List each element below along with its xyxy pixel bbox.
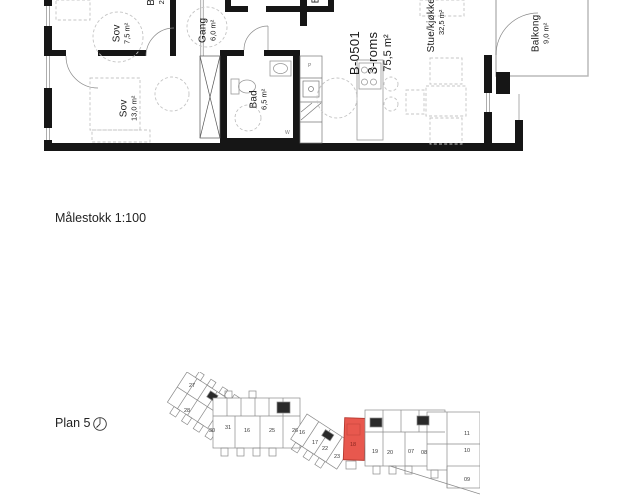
svg-text:07: 07 bbox=[408, 449, 414, 455]
svg-text:16: 16 bbox=[244, 428, 250, 434]
furniture bbox=[56, 0, 466, 144]
svg-text:16: 16 bbox=[299, 430, 305, 436]
svg-text:18: 18 bbox=[350, 442, 356, 448]
svg-text:22: 22 bbox=[322, 446, 328, 452]
svg-text:08: 08 bbox=[421, 450, 427, 456]
pantry-mark: P bbox=[308, 63, 312, 69]
svg-text:28: 28 bbox=[184, 408, 190, 414]
svg-text:09: 09 bbox=[464, 477, 470, 483]
svg-text:25: 25 bbox=[269, 428, 275, 434]
shaft bbox=[200, 56, 220, 138]
svg-text:19: 19 bbox=[372, 449, 378, 455]
walls bbox=[44, 0, 523, 151]
svg-text:20: 20 bbox=[387, 450, 393, 456]
bath-fixtures bbox=[231, 61, 291, 131]
kitchen-island bbox=[357, 60, 383, 140]
balcony-outline bbox=[496, 0, 588, 76]
svg-text:26: 26 bbox=[292, 428, 298, 434]
kitchen-cabinets bbox=[300, 56, 322, 143]
svg-text:10: 10 bbox=[464, 448, 470, 454]
svg-text:23: 23 bbox=[334, 454, 340, 460]
scale-label: Målestokk 1:100 bbox=[55, 211, 146, 225]
plan-level-label: Plan 5 bbox=[55, 416, 90, 430]
floorplan-page: P W bbox=[0, 0, 636, 500]
svg-text:27: 27 bbox=[189, 383, 195, 389]
svg-text:30: 30 bbox=[209, 428, 215, 434]
svg-text:11: 11 bbox=[464, 431, 470, 437]
keyplan-block-middle bbox=[213, 391, 300, 456]
svg-text:31: 31 bbox=[225, 425, 231, 431]
window-lines bbox=[47, 0, 520, 143]
key-plan: 27 28 30 31 16 25 26 16 17 22 23 18 19 2… bbox=[165, 372, 480, 496]
washer-mark: W bbox=[285, 130, 290, 136]
floor-plan: P W bbox=[0, 0, 636, 240]
north-arrow-icon bbox=[92, 416, 108, 432]
svg-text:17: 17 bbox=[312, 440, 318, 446]
